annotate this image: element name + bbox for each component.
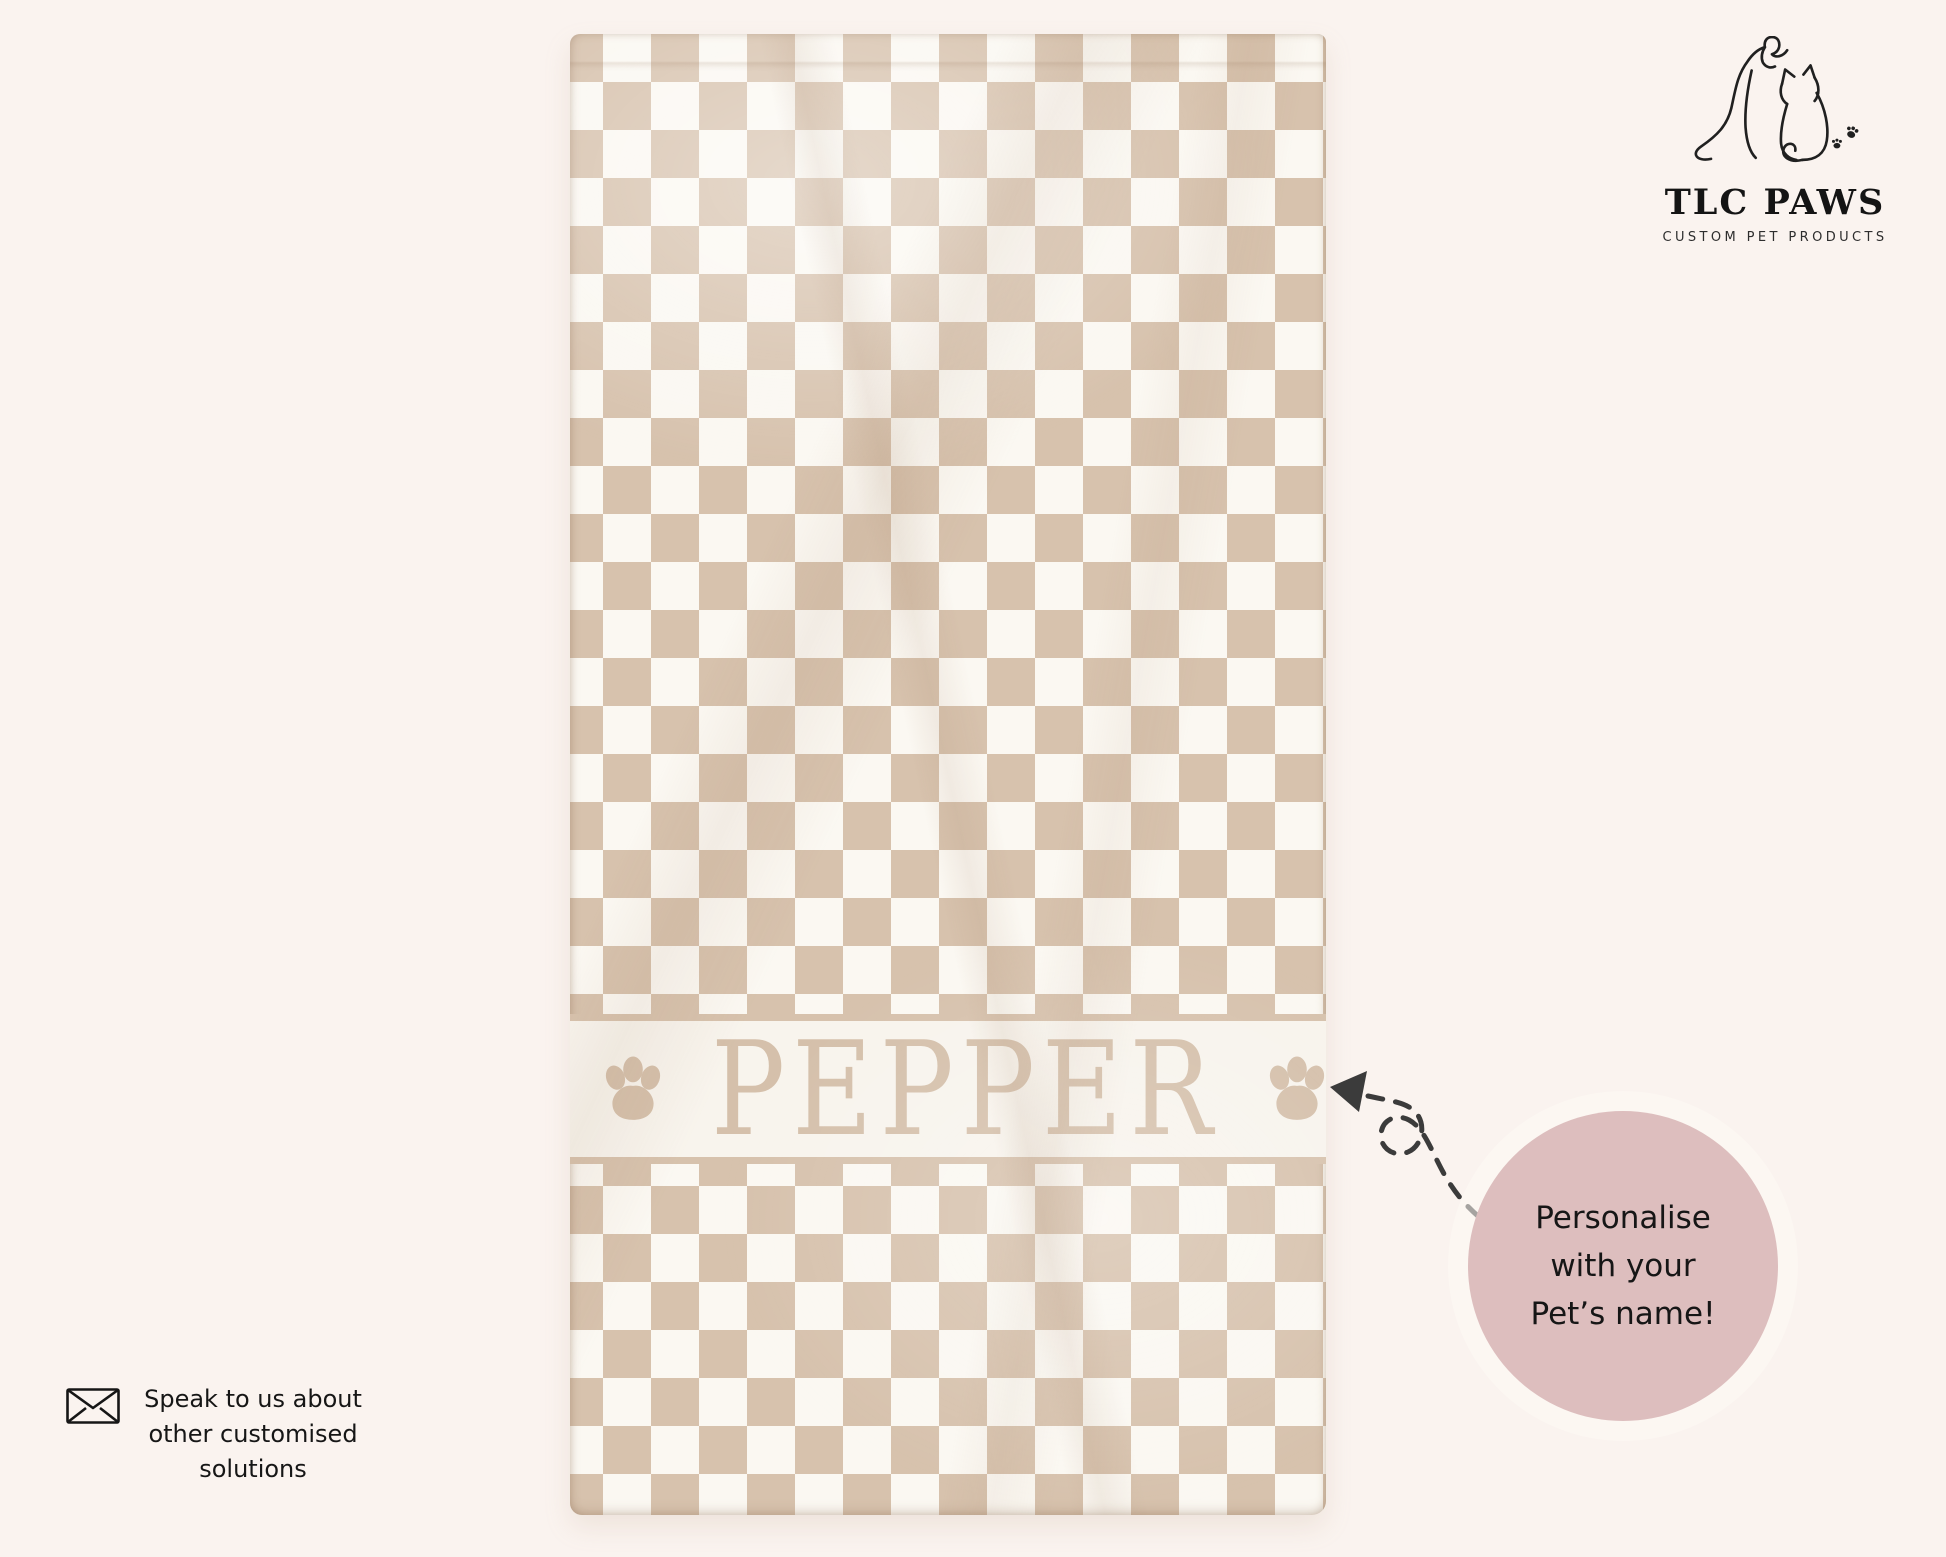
callout-line-1: Personalise: [1535, 1194, 1711, 1242]
callout-line-3: Pet’s name!: [1530, 1290, 1715, 1338]
paw-print-icon-right: [1264, 1055, 1330, 1123]
envelope-icon: [66, 1388, 120, 1424]
name-band: PEPPER: [570, 1014, 1326, 1164]
contact-line-3: solutions: [130, 1452, 376, 1487]
towel-mockup: PEPPER: [570, 34, 1326, 1515]
contact-text: Speak to us about other customised solut…: [130, 1382, 376, 1487]
contact-line-1: Speak to us about: [130, 1382, 376, 1417]
contact-note: Speak to us about other customised solut…: [66, 1382, 378, 1487]
contact-line-2: other customised: [130, 1417, 376, 1452]
dog-cat-line-art-icon: [1687, 36, 1863, 168]
paw-print-icon-left: [600, 1055, 666, 1123]
brand-logo: TLC PAWS CUSTOM PET PRODUCTS: [1652, 36, 1898, 245]
brand-name: TLC PAWS: [1652, 182, 1898, 223]
pet-name-text: PEPPER: [711, 1024, 1219, 1154]
personalise-callout: Personalise with your Pet’s name!: [1468, 1111, 1778, 1421]
callout-line-2: with your: [1550, 1242, 1695, 1290]
brand-tagline: CUSTOM PET PRODUCTS: [1652, 230, 1898, 245]
product-mockup-scene: PEPPER: [0, 0, 1946, 1557]
